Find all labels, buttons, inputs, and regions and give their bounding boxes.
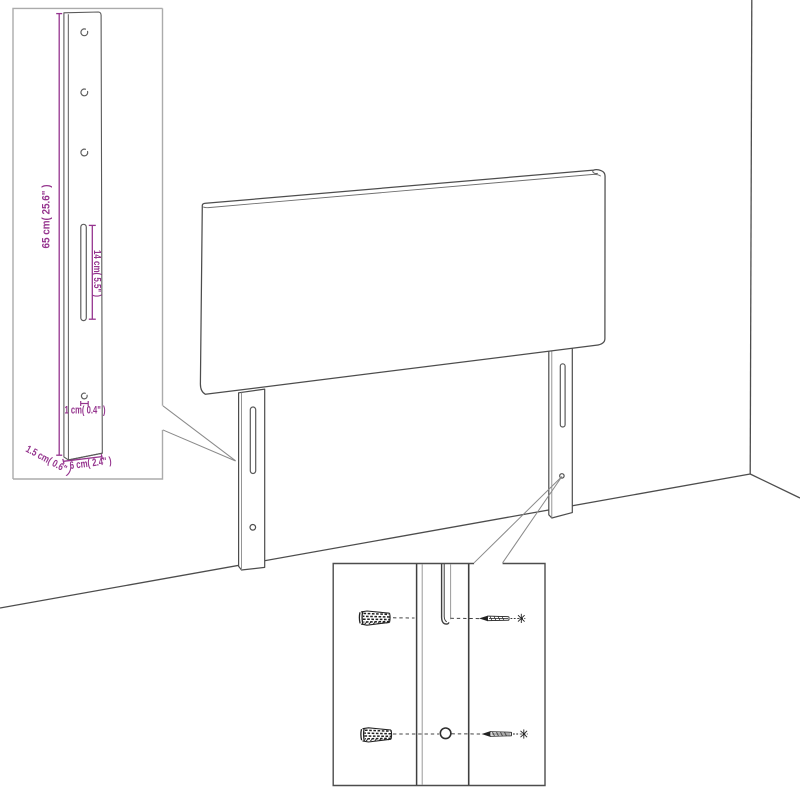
svg-text:65 cm( 25.6" ): 65 cm( 25.6" ) bbox=[41, 184, 53, 248]
svg-text:14 cm( 5.5" ): 14 cm( 5.5" ) bbox=[91, 250, 102, 297]
svg-text:1 cm( 0.4" ): 1 cm( 0.4" ) bbox=[65, 405, 106, 417]
